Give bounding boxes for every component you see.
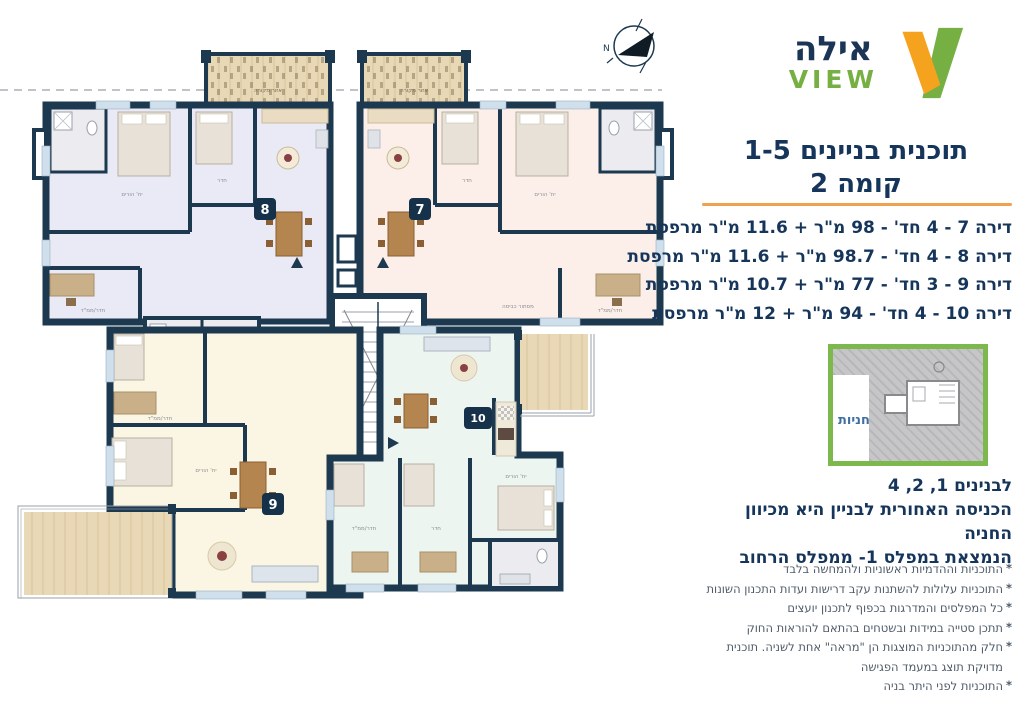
title-line-2: קומה 2: [810, 169, 902, 199]
floor-plan: N אזור מקורה: [0, 0, 690, 724]
parking-label: חניות: [834, 413, 874, 428]
svg-text:מסתור כביסה: מסתור כביסה: [502, 304, 534, 310]
bullet-asterisk: *: [1006, 579, 1012, 599]
apartment-list-item: דירה 7 - 4 חד' - 98 מ"ר + 11.6 מ"ר מרפסת: [700, 214, 1012, 243]
parking-plan-icon: [867, 357, 971, 449]
apartment-list-item: דירה 9 - 3 חד' - 77 מ"ר + 10.7 מ"ר מרפסת: [700, 271, 1012, 300]
apartment-list-item: דירה 10 - 4 חד' - 94 מ"ר + 12 מ"ר מרפסת: [700, 300, 1012, 329]
disclaimer-list: *התוכניות וההדמיות ראשוניות ולהמחשה בלבד…: [694, 560, 1012, 697]
parking-inset: חניות: [828, 344, 988, 466]
disclaimer-item: *תתכן סטייה במידות ובשטחים בהתאם להוראות…: [694, 619, 1012, 639]
disclaimer-item: *כל המפלסים והמדרגות בכפוף לתכנון יועצים: [694, 599, 1012, 619]
svg-text:חדר/ממ"ד: חדר/ממ"ד: [148, 416, 173, 422]
svg-text:חדר/ממ"ד: חדר/ממ"ד: [352, 526, 377, 532]
apartment-list: דירה 7 - 4 חד' - 98 מ"ר + 11.6 מ"ר מרפסת…: [700, 214, 1012, 328]
brand-v-icon: [890, 26, 968, 100]
svg-text:חדר/ממ"ד: חדר/ממ"ד: [598, 308, 623, 314]
svg-text:חדר: חדר: [462, 178, 472, 184]
brand-name-latin: VIEW: [789, 66, 878, 94]
bullet-asterisk: *: [1006, 618, 1012, 638]
svg-text:9: 9: [268, 498, 277, 513]
svg-text:יח' הורים: יח' הורים: [121, 192, 142, 198]
svg-text:חדר/ממ"ד: חדר/ממ"ד: [81, 308, 106, 314]
disclaimer-item: *התוכניות וההדמיות ראשוניות ולהמחשה בלבד: [694, 560, 1012, 580]
bullet-asterisk: *: [1006, 637, 1012, 657]
apartment-7: אזור מקורה יח' הורים חדר חדר/ממ"ד מסתור …: [357, 50, 672, 326]
svg-text:יח' הורים: יח' הורים: [534, 192, 555, 198]
unit-badge-8: 8: [254, 198, 276, 220]
apartment-list-item: דירה 8 - 4 חד' - 98.7 מ"ר + 11.6 מ"ר מרפ…: [700, 243, 1012, 272]
note-line-1: לבנינים 1, 2, 4: [700, 474, 1012, 498]
svg-text:חדר: חדר: [217, 178, 227, 184]
brand-name-hebrew: אילה: [789, 32, 878, 66]
divider-rule: [702, 203, 1012, 206]
unit-badge-9: 9: [262, 493, 284, 515]
bullet-asterisk: *: [1006, 559, 1012, 579]
svg-text:N: N: [603, 44, 610, 54]
unit-badge-7: 7: [409, 198, 431, 220]
disclaimer-item: *התוכניות לפני היתר בניה: [694, 677, 1012, 697]
note-line-2: הכניסה האחורית לבניין היא מכיוון החניה: [700, 498, 1012, 546]
page-title: תוכנית בניינים 1-5קומה 2: [700, 135, 1012, 201]
unit-badge-10: 10: [464, 407, 492, 429]
bullet-asterisk: *: [1006, 676, 1012, 696]
apartment-9: חדר/ממ"ד יח' הורים 9: [18, 330, 360, 599]
svg-text:חדר: חדר: [431, 526, 441, 532]
svg-text:8: 8: [260, 203, 269, 218]
apartment-10-balcony: [514, 330, 594, 416]
brand-wordmark: אילה VIEW: [789, 32, 878, 94]
bullet-asterisk: *: [1006, 598, 1012, 618]
apartment-8: אזור מקורה יח' הורים חדר חדר/: [34, 50, 335, 322]
svg-text:10: 10: [470, 412, 486, 425]
svg-text:יח' הורים: יח' הורים: [195, 468, 216, 474]
title-line-1: תוכנית בניינים 1-5: [744, 136, 968, 166]
brand-logo: אילה VIEW: [789, 26, 968, 100]
svg-text:אזור מקורה: אזור מקורה: [400, 88, 428, 94]
north-compass-icon: N: [603, 19, 654, 73]
disclaimer-item: *חלק מהתוכניות המוצגות הן "מראה" אחת לשנ…: [694, 638, 1012, 677]
buildings-note: לבנינים 1, 2, 4 הכניסה האחורית לבניין הי…: [700, 474, 1012, 570]
svg-text:יח' הורים: יח' הורים: [505, 474, 526, 480]
svg-text:אזור מקורה: אזור מקורה: [254, 88, 282, 94]
apartment-9-balcony: [18, 504, 176, 598]
disclaimer-item: *התוכניות עלולות להשתנות עקב דרישות ועדו…: [694, 580, 1012, 600]
svg-text:7: 7: [415, 203, 424, 218]
